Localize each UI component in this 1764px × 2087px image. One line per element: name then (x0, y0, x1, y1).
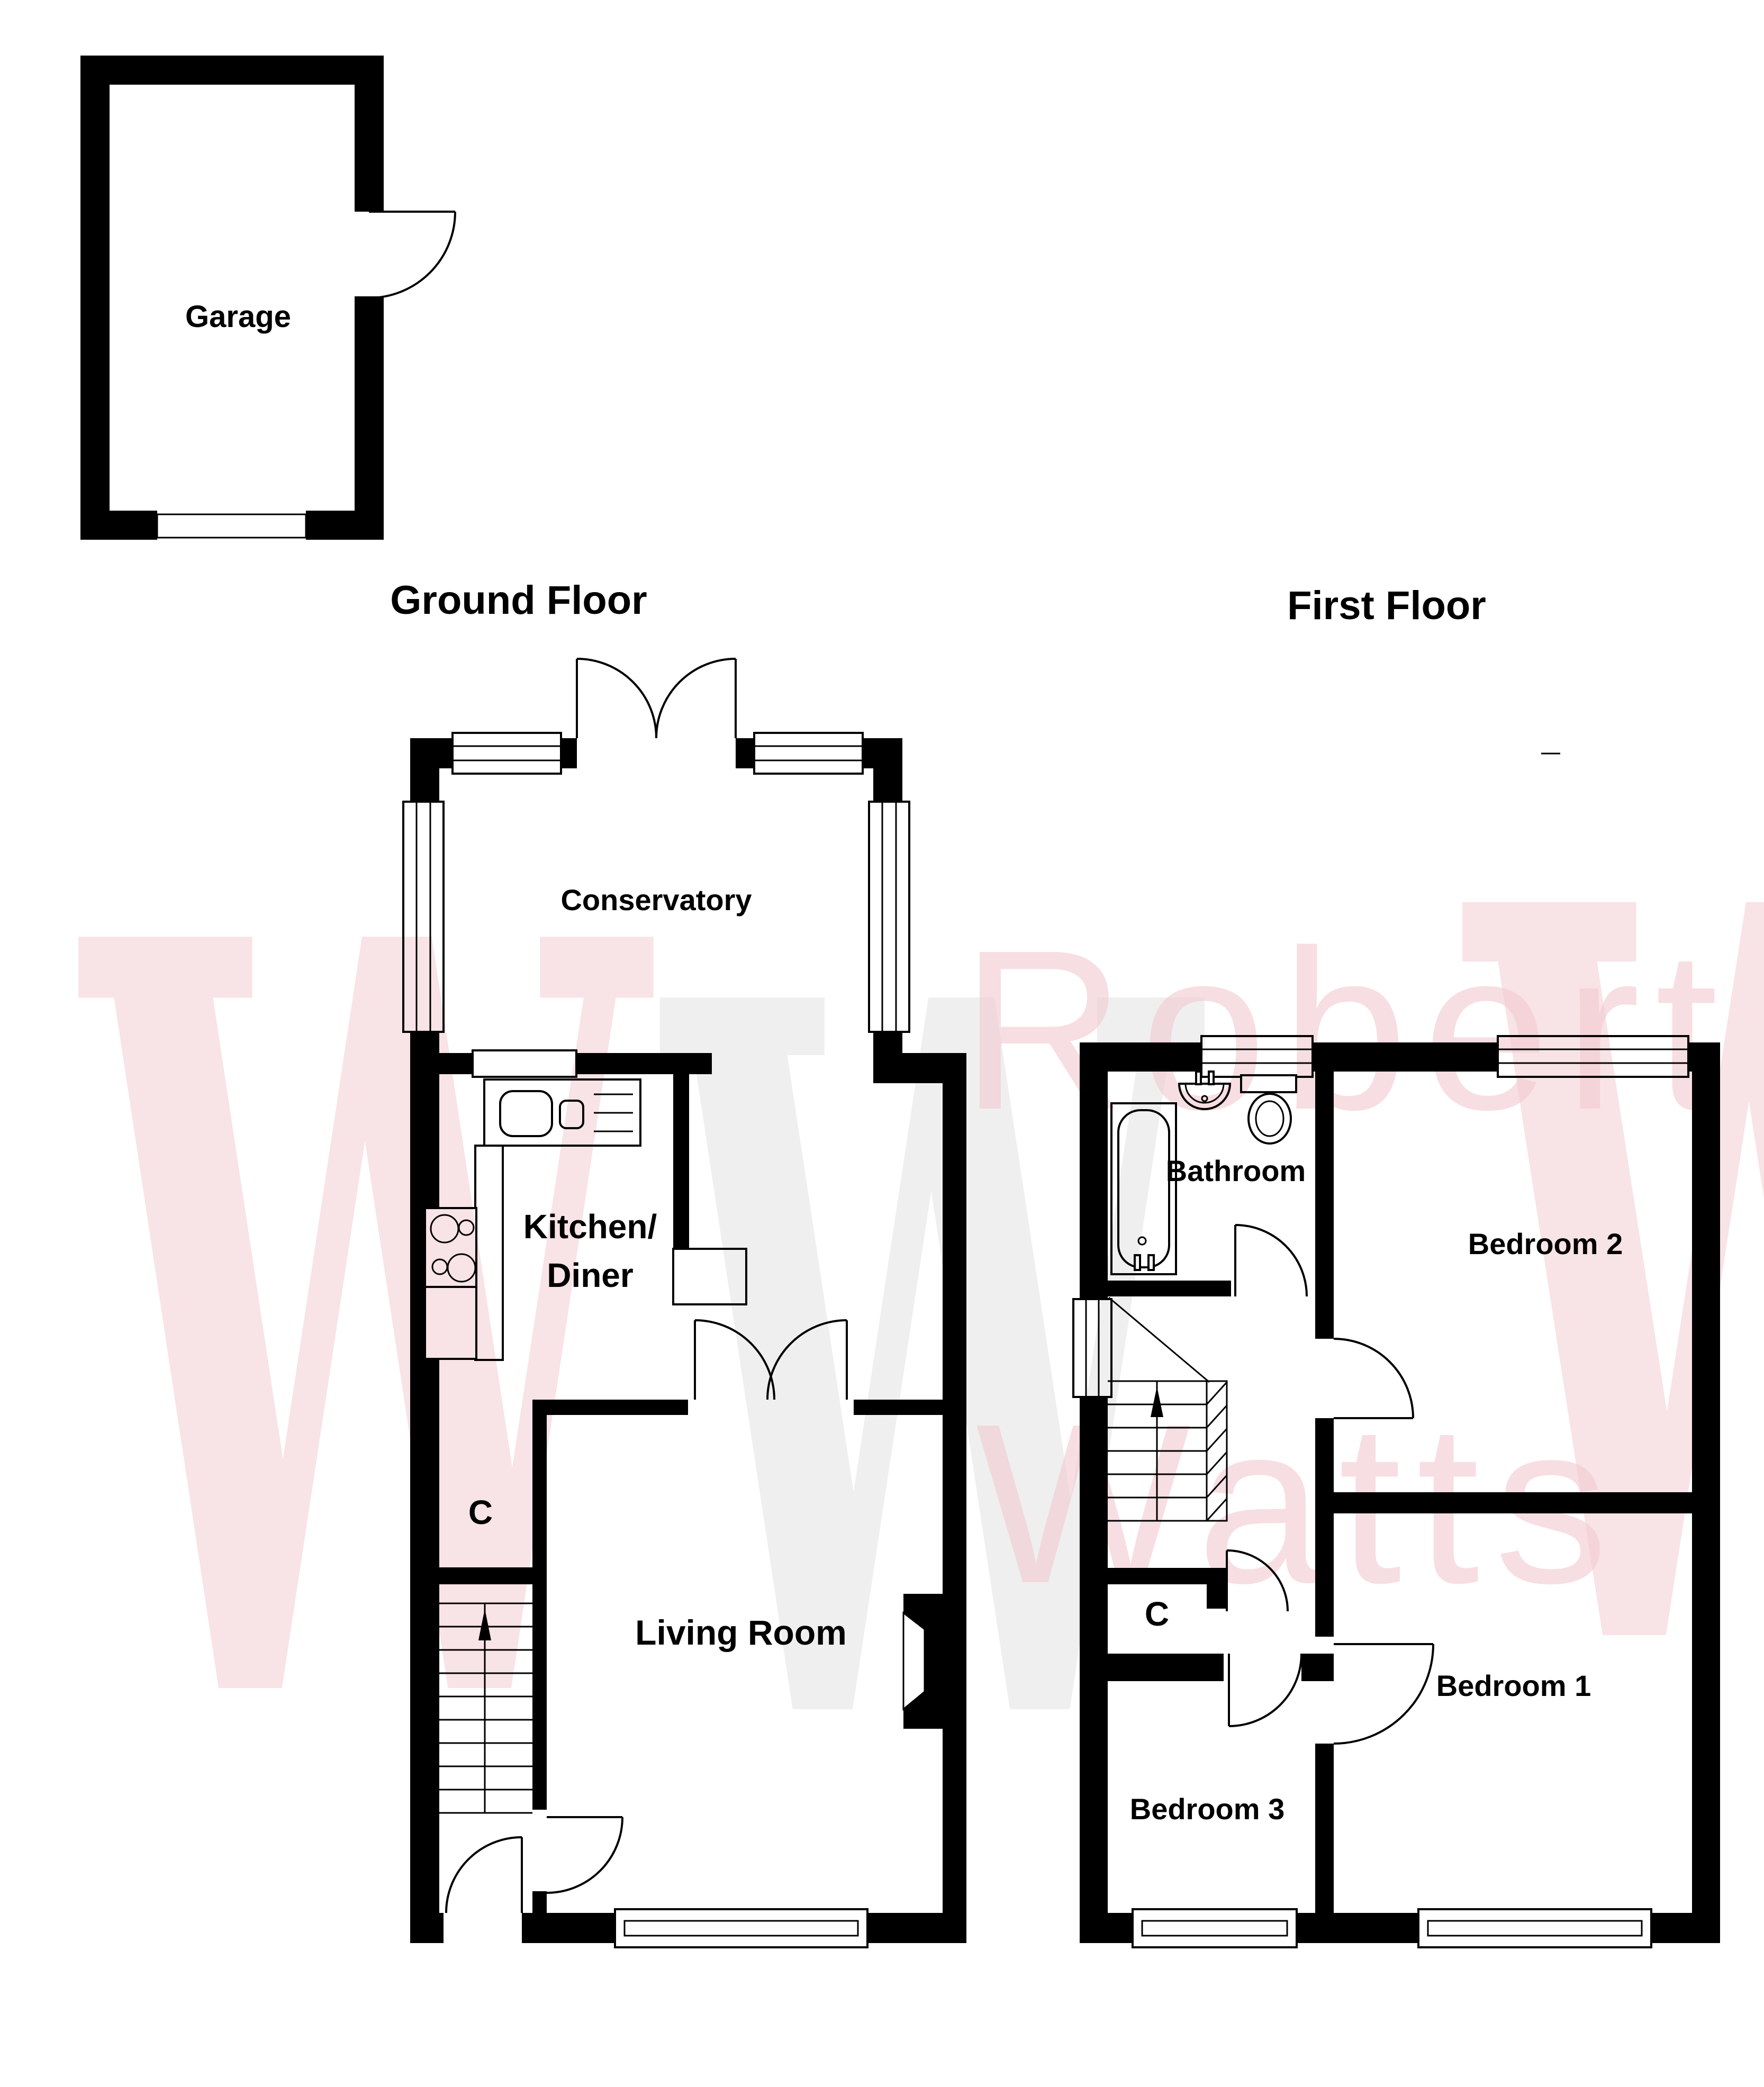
first-floor-title: First Floor (1287, 583, 1486, 628)
garage-wall-top (80, 56, 384, 85)
bathroom-door-swing (1235, 1225, 1307, 1296)
garage-wall-right-upper (355, 56, 384, 212)
garage-vehicle-door (157, 514, 306, 538)
garage-wall-bottom-left (80, 511, 157, 540)
ground-floor-title: Ground Floor (390, 578, 647, 623)
watermark-name-line1: Robert (961, 903, 1733, 1157)
garage-wall-right-lower (355, 296, 384, 511)
garage-door-swing (369, 212, 455, 298)
bedroom3-door-swing (1229, 1654, 1301, 1726)
bedroom1-door-swing (1334, 1644, 1433, 1744)
garage-label: Garage (185, 300, 291, 334)
watermark: W W W Robert Watts (75, 692, 1764, 1940)
watermark-monogram-right: W (1459, 692, 1764, 1873)
garage-wall-left (80, 56, 110, 540)
floorplan-page: Garage Ground Floor First Floor (0, 0, 1764, 2087)
bedroom1-window (1418, 1909, 1651, 1947)
garage-plan: Garage (80, 56, 455, 540)
garage-wall-bottom-right (306, 511, 384, 540)
first-partition-lower (1315, 1744, 1334, 1913)
watermark-monogram-left: W (75, 721, 656, 1931)
watermark-name-line2: Watts (976, 1377, 1623, 1631)
